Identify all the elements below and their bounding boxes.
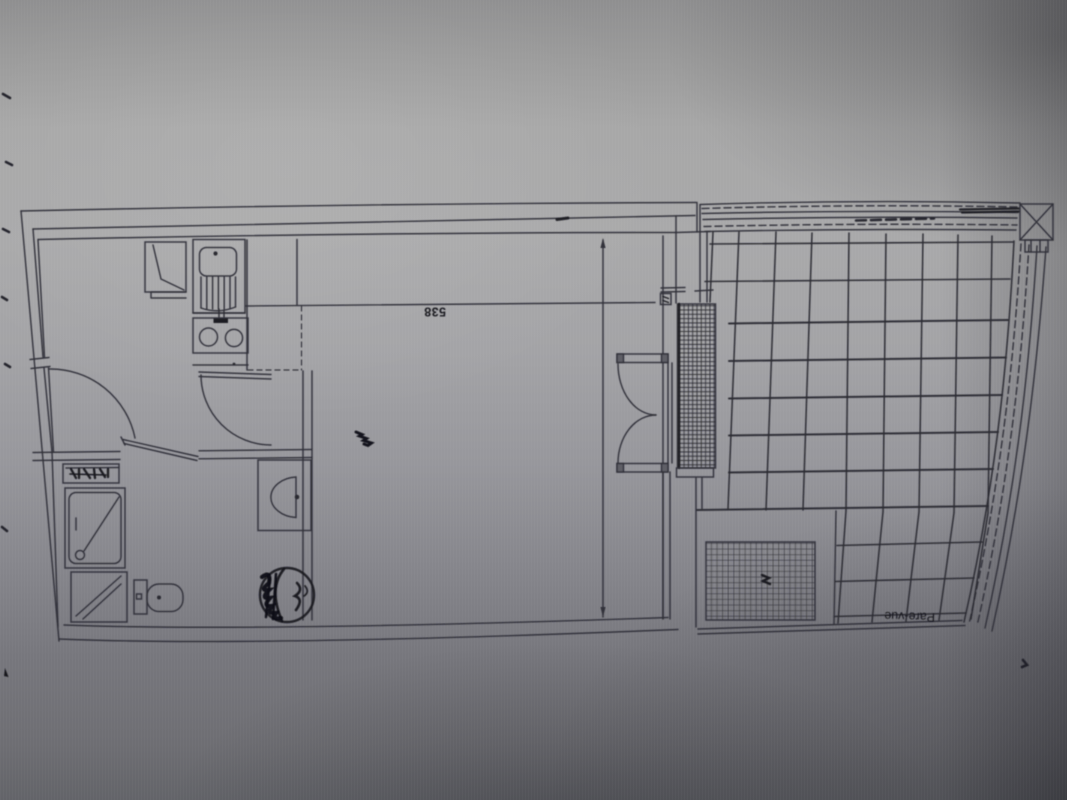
svg-text:Pare-vue: Pare-vue (884, 609, 935, 624)
svg-text:538: 538 (424, 305, 446, 319)
